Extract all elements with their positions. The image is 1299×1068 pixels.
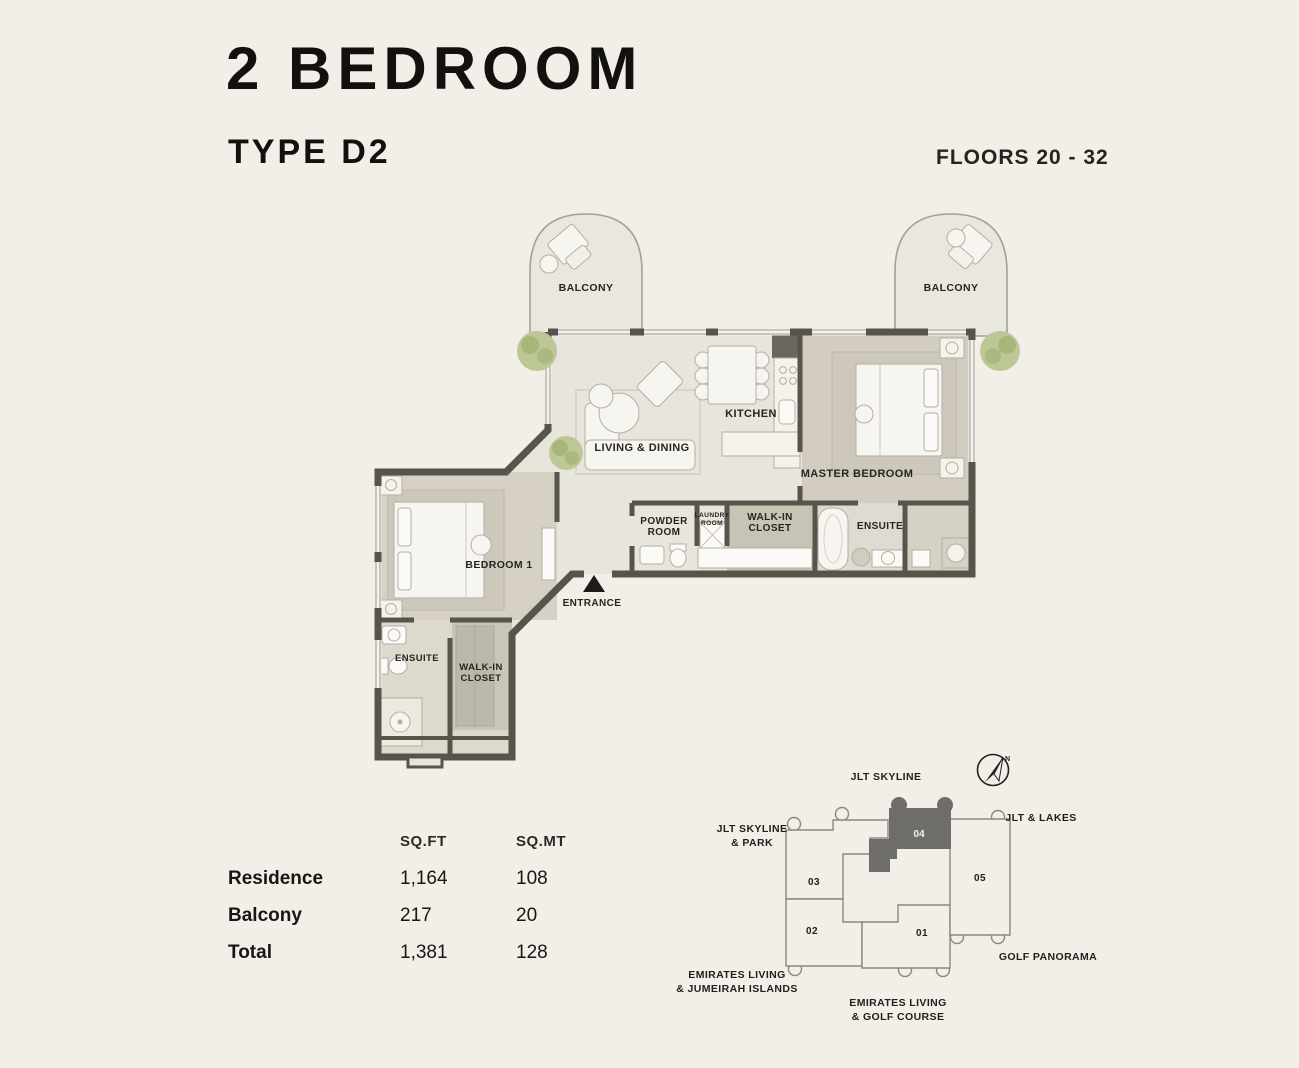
area-table-header: SQ.FT SQ.MT [228,833,628,850]
unit-01-shape [862,905,950,968]
emirates-living-golf-label: EMIRATES LIVING [849,997,946,1009]
unit-02-number: 02 [806,926,818,937]
jlt-lakes-label: JLT & LAKES [1005,812,1076,824]
laundry-room-label: ROOM [701,520,723,527]
jlt-skyline-label: JLT SKYLINE [851,771,922,783]
row-sqmt: 108 [516,868,616,890]
bedroom1-walk-in-closet-label: WALK-IN [459,662,502,673]
jlt-skyline-park-label: & PARK [731,837,773,849]
master-ensuite-label: ENSUITE [857,521,903,532]
master-bedroom-label: MASTER BEDROOM [801,468,914,480]
master-walk-in-closet-label: WALK-IN [747,512,793,523]
jlt-skyline-park-label: JLT SKYLINE [717,823,788,835]
plant-icon [980,331,1020,371]
balcony-table-icon [540,255,558,273]
dining-table [695,346,769,404]
floor-plan: BALCONY BALCONY [360,195,1020,785]
row-sqmt: 20 [516,905,616,927]
page-title: 2 BEDROOM [226,34,643,103]
bedroom1-label: BEDROOM 1 [465,559,532,571]
row-sqmt: 128 [516,942,616,964]
emirates-living-golf-label: & GOLF COURSE [852,1011,945,1023]
kitchen-label: KITCHEN [725,408,777,420]
compass-icon: N [978,755,1011,786]
emirates-living-jumeirah-label: & JUMEIRAH ISLANDS [676,983,798,995]
emirates-living-jumeirah-label: EMIRATES LIVING [688,969,785,981]
floors-label: FLOORS 20 - 32 [936,146,1109,170]
table-row: Residence 1,164 108 [228,868,628,890]
row-label: Residence [228,868,400,890]
unit-02-shape [786,899,862,966]
bedroom1-ensuite-label: ENSUITE [395,653,439,664]
col-sqft: SQ.FT [400,833,516,850]
unit-01-number: 01 [916,928,928,939]
balcony-left-label: BALCONY [559,282,614,294]
row-label: Total [228,942,400,964]
living-dining-label: LIVING & DINING [594,442,689,454]
closet-unit [698,548,812,568]
plant-icon [517,331,557,371]
row-sqft: 1,381 [400,942,516,964]
entrance-label: ENTRANCE [563,598,622,609]
balcony-table-icon [947,229,965,247]
balcony-left: BALCONY [530,214,642,336]
plant-icon [549,436,583,470]
building-footprint: 03 02 01 05 04 [786,797,1010,977]
powder-room-fixtures [640,544,686,567]
bedroom1-walk-in-closet-label: CLOSET [461,673,502,684]
table-row: Balcony 217 20 [228,905,628,927]
balcony-right-label: BALCONY [924,282,979,294]
powder-room-label: POWDER [640,516,688,527]
compass-north-label: N [1005,756,1010,763]
master-walk-in-closet-label: CLOSET [749,523,792,534]
laundry-room-label: LAUNDRY [695,512,730,519]
unit-03-number: 03 [808,877,820,888]
table-row: Total 1,381 128 [228,942,628,964]
golf-panorama-label: GOLF PANORAMA [999,951,1097,963]
entrance-marker: ENTRANCE [563,575,622,609]
row-sqft: 217 [400,905,516,927]
unit-05-number: 05 [974,873,986,884]
balcony-right: BALCONY [895,214,1007,336]
unit-04-number: 04 [913,829,925,840]
area-table: SQ.FT SQ.MT Residence 1,164 108 Balcony … [228,833,628,979]
row-label: Balcony [228,905,400,927]
col-sqmt: SQ.MT [516,833,616,850]
powder-room-label: ROOM [648,527,681,538]
brochure-page: 2 BEDROOM TYPE D2 FLOORS 20 - 32 BALCONY… [0,0,1299,1068]
page-subtitle: TYPE D2 [228,133,391,172]
site-plan: 03 02 01 05 04 N JLT SKYLINE JLT SKYLINE… [670,735,1110,1035]
master-bed [832,338,964,478]
row-sqft: 1,164 [400,868,516,890]
